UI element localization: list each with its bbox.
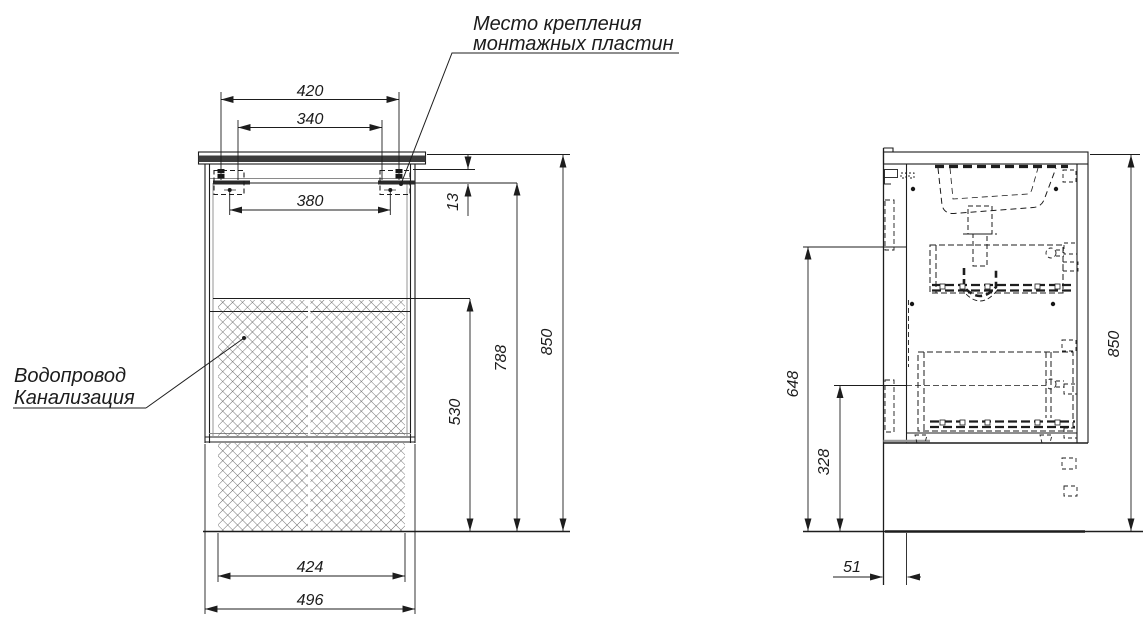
dim-648: 648: [785, 371, 802, 398]
wall-bracket: [885, 170, 915, 185]
dim-496: 496: [297, 592, 324, 609]
dim-424: 424: [297, 559, 324, 576]
leader-mounting-plates: [399, 53, 679, 186]
plumbing-label-line1: Водопровод: [14, 365, 126, 387]
countertop-side: [884, 152, 1089, 164]
dim-328: 328: [816, 449, 833, 476]
drain-trap-hidden: [961, 206, 999, 301]
mounting-plates-label-line2: монтажных пластин: [473, 33, 674, 55]
plumbing-zone-hatch: [218, 300, 405, 531]
dim-850-side: 850: [1106, 331, 1123, 358]
hinge-fittings-hidden: [915, 170, 1078, 496]
mounting-plates-label-line1: Место крепления: [473, 13, 642, 35]
dim-380: 380: [297, 193, 324, 210]
dim-530: 530: [447, 399, 464, 426]
plumbing-label-line2: Канализация: [14, 387, 135, 409]
dim-850-front: 850: [539, 329, 556, 356]
drawing-canvas: Место крепления монтажных пластин Водопр…: [0, 0, 1144, 625]
side-view: [803, 148, 1143, 585]
countertop-front: [199, 152, 426, 164]
dim-51: 51: [843, 559, 861, 576]
basin-hidden-outline: [935, 167, 1068, 214]
dim-788: 788: [493, 345, 510, 372]
side-dimensions: [803, 155, 1140, 586]
back-panel-hidden: [885, 200, 909, 432]
upper-drawer-hidden: [930, 245, 1072, 293]
dim-13: 13: [445, 193, 462, 211]
dim-420: 420: [297, 83, 324, 100]
dim-340: 340: [297, 111, 324, 128]
technical-drawing: Место крепления монтажных пластин Водопр…: [0, 0, 1144, 625]
lower-drawer-hidden: [906, 352, 1075, 431]
front-view: [199, 92, 571, 614]
